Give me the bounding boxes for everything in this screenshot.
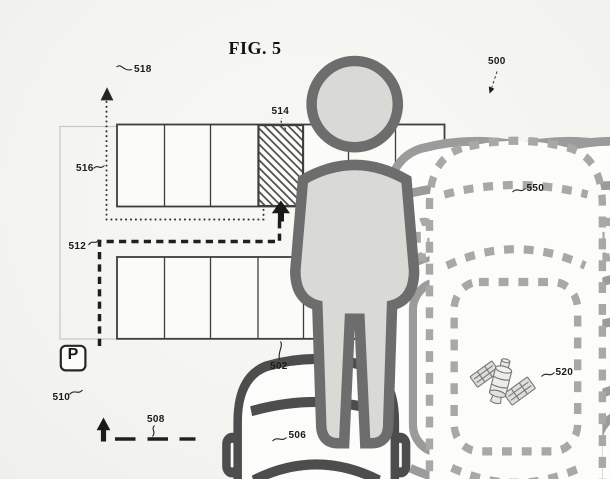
ref-label-520: 520 <box>556 367 574 378</box>
leader-516 <box>94 166 105 169</box>
road-direction-arrow-icon <box>97 418 111 442</box>
hatched-selected-space <box>259 125 303 205</box>
ref-500-leader-line <box>492 72 497 88</box>
ref-label-550: 550 <box>527 183 545 194</box>
parking-sign-letter: P <box>61 346 85 370</box>
diagram-linework <box>0 0 610 479</box>
leader-518 <box>117 66 133 70</box>
ref-label-518: 518 <box>134 64 152 75</box>
ref-label-510: 510 <box>53 392 71 403</box>
ref-label-506: 506 <box>289 430 307 441</box>
walking-path-arrow-icon <box>101 87 114 100</box>
patent-figure-canvas: FIG. 5 P 500 518 516 514 512 502 510 508… <box>0 0 610 479</box>
leader-508 <box>153 426 155 437</box>
leader-510 <box>70 390 83 395</box>
leader-502 <box>279 342 281 360</box>
ref-label-512: 512 <box>69 241 87 252</box>
ref-label-508: 508 <box>147 414 165 425</box>
ref-label-500: 500 <box>488 56 506 67</box>
ref-label-514: 514 <box>272 106 290 117</box>
ref-label-516: 516 <box>76 163 94 174</box>
leader-512 <box>89 240 99 246</box>
ref-500-arrowhead-icon <box>489 86 495 93</box>
ref-label-502: 502 <box>270 361 288 372</box>
figure-title: FIG. 5 <box>205 38 305 59</box>
